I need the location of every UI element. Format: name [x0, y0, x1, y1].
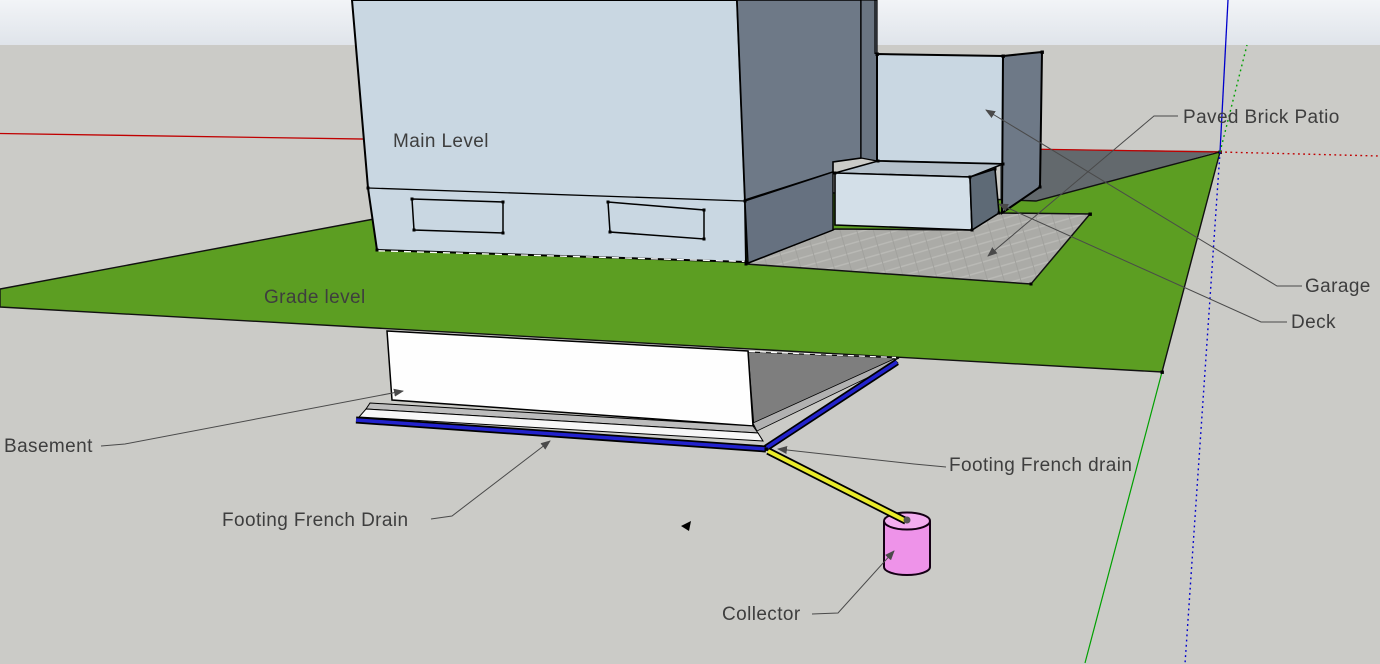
garage-side-wall — [1002, 52, 1042, 213]
model-canvas[interactable] — [0, 0, 1380, 664]
sketchup-viewport[interactable]: Main Level Grade level Basement Footing … — [0, 0, 1380, 664]
garage-front-wall — [877, 54, 1003, 164]
label-collector: Collector — [722, 604, 801, 626]
label-basement: Basement — [4, 436, 93, 458]
label-grade-level: Grade level — [264, 287, 366, 309]
deck-front — [835, 173, 972, 230]
label-footing-french-drain-right: Footing French drain — [949, 455, 1132, 477]
label-footing-french-drain-left: Footing French Drain — [222, 510, 408, 532]
label-paved-brick-patio: Paved Brick Patio — [1183, 107, 1340, 129]
label-deck: Deck — [1291, 312, 1336, 334]
label-main-level: Main Level — [393, 131, 489, 153]
label-garage: Garage — [1305, 276, 1371, 298]
